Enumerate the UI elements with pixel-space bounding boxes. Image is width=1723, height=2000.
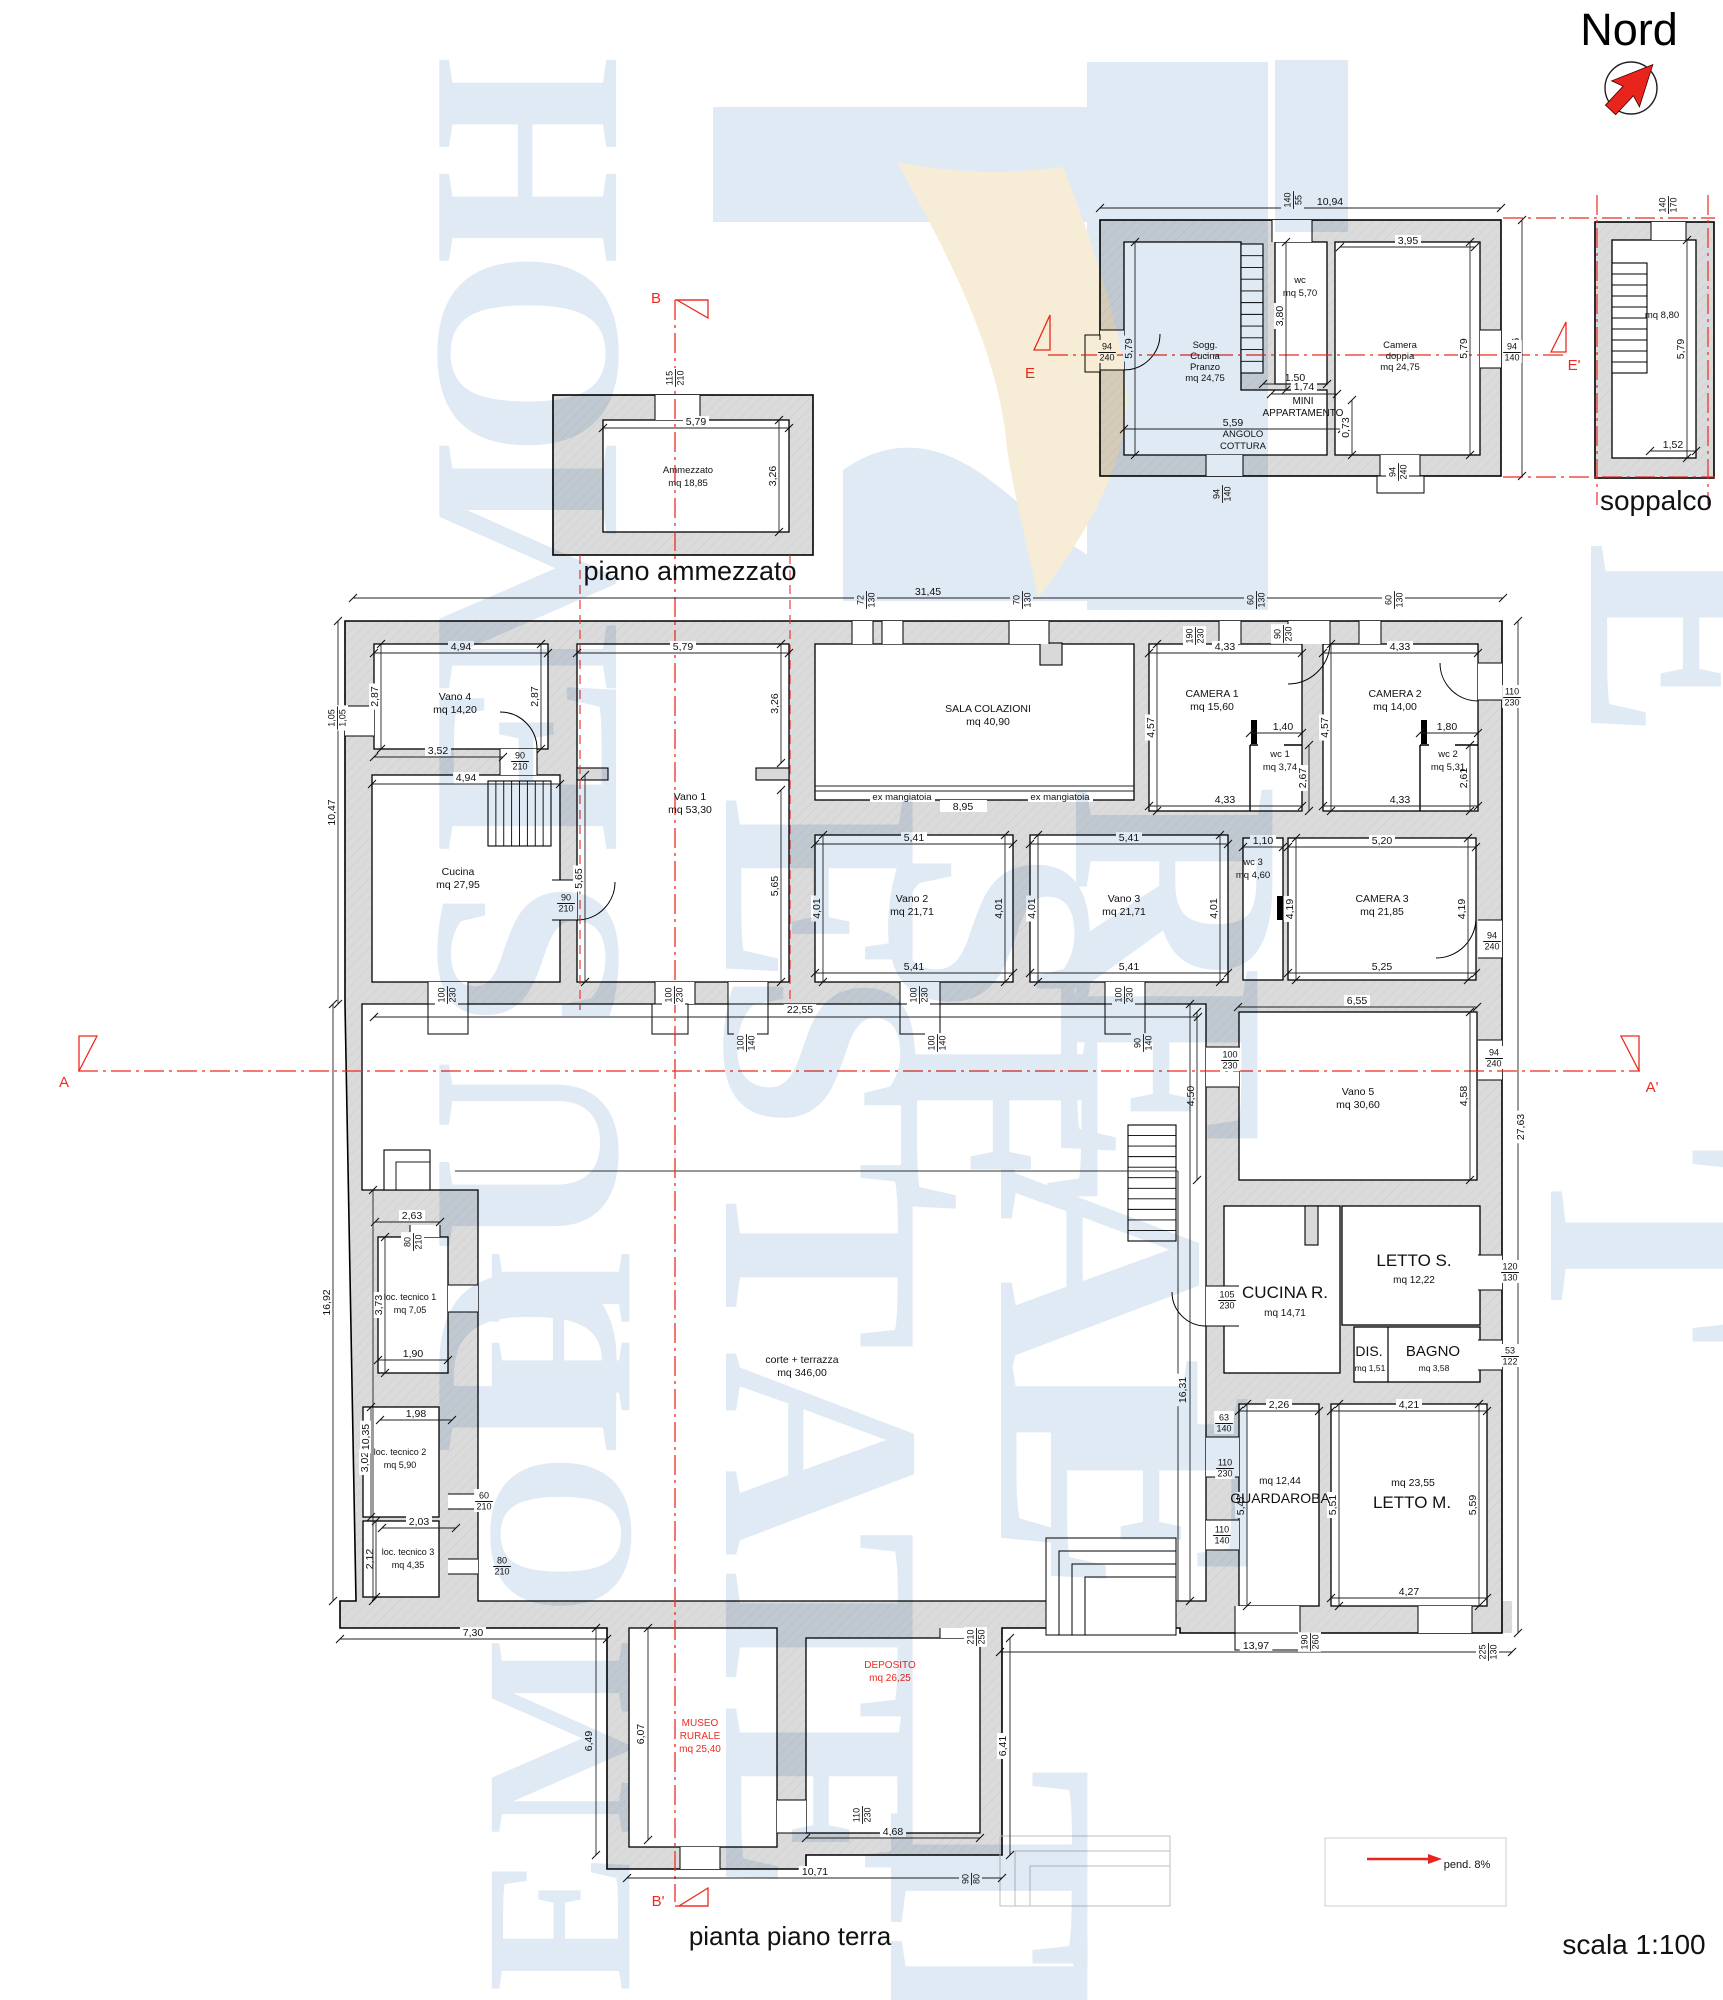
svg-text:mq 15,60: mq 15,60 bbox=[1190, 701, 1234, 713]
svg-text:10,47: 10,47 bbox=[326, 799, 338, 825]
svg-text:A': A' bbox=[1646, 1079, 1659, 1096]
svg-text:3,02: 3,02 bbox=[359, 1452, 371, 1473]
svg-text:4,27: 4,27 bbox=[1399, 1586, 1420, 1598]
svg-text:E: E bbox=[836, 1024, 1168, 1224]
svg-text:pend. 8%: pend. 8% bbox=[1444, 1859, 1491, 1871]
svg-text:110: 110 bbox=[1505, 687, 1519, 697]
svg-text:mq 14,71: mq 14,71 bbox=[1264, 1308, 1306, 1319]
svg-text:A: A bbox=[664, 1351, 980, 1557]
svg-text:13,97: 13,97 bbox=[1243, 1640, 1269, 1652]
svg-text:230: 230 bbox=[1284, 626, 1294, 641]
svg-text:mq 3,58: mq 3,58 bbox=[1419, 1363, 1450, 1373]
svg-text:T: T bbox=[664, 1531, 980, 1721]
svg-text:210: 210 bbox=[676, 370, 686, 385]
svg-text:130: 130 bbox=[1395, 592, 1405, 607]
svg-text:5,59: 5,59 bbox=[1467, 1495, 1479, 1516]
svg-text:O: O bbox=[376, 248, 675, 458]
svg-text:230: 230 bbox=[1196, 628, 1206, 643]
svg-text:E: E bbox=[443, 1852, 675, 1992]
svg-text:240: 240 bbox=[1486, 1059, 1501, 1069]
svg-text:5,79: 5,79 bbox=[673, 641, 694, 653]
svg-text:E: E bbox=[826, 1936, 1158, 2000]
svg-text:1,40: 1,40 bbox=[1273, 721, 1294, 733]
svg-text:240: 240 bbox=[1484, 942, 1499, 952]
svg-text:5,79: 5,79 bbox=[686, 416, 707, 428]
svg-text:1,80: 1,80 bbox=[1437, 721, 1458, 733]
svg-text:60: 60 bbox=[1384, 595, 1394, 605]
svg-text:94: 94 bbox=[1489, 1048, 1499, 1058]
svg-text:5,79: 5,79 bbox=[1458, 338, 1470, 359]
svg-text:E': E' bbox=[1568, 357, 1581, 374]
svg-text:mq 5,31: mq 5,31 bbox=[1431, 762, 1465, 773]
svg-text:T: T bbox=[1486, 1146, 1723, 1346]
svg-text:mq 3,74: mq 3,74 bbox=[1263, 762, 1297, 773]
svg-text:soppalco: soppalco bbox=[1600, 485, 1712, 516]
svg-text:wc 1: wc 1 bbox=[1269, 749, 1290, 760]
svg-text:6,55: 6,55 bbox=[1347, 995, 1368, 1007]
svg-text:O: O bbox=[443, 1453, 675, 1616]
svg-text:225: 225 bbox=[1478, 1644, 1488, 1659]
svg-text:mq 5,70: mq 5,70 bbox=[1283, 288, 1317, 299]
svg-text:1,52: 1,52 bbox=[1663, 439, 1684, 451]
svg-text:LETTO S.: LETTO S. bbox=[1376, 1251, 1451, 1270]
svg-text:MINI: MINI bbox=[1292, 396, 1313, 407]
svg-text:DIS.: DIS. bbox=[1355, 1343, 1382, 1359]
svg-text:Camera: Camera bbox=[1383, 340, 1418, 351]
svg-text:4,33: 4,33 bbox=[1390, 794, 1411, 806]
svg-text:mq 8,80: mq 8,80 bbox=[1645, 310, 1679, 321]
svg-text:4,19: 4,19 bbox=[1456, 899, 1468, 920]
svg-text:94: 94 bbox=[1388, 467, 1398, 477]
svg-text:3,26: 3,26 bbox=[767, 466, 779, 487]
svg-text:S: S bbox=[826, 848, 1158, 1015]
svg-text:mq 23,55: mq 23,55 bbox=[1391, 1477, 1435, 1489]
svg-text:3,80: 3,80 bbox=[1274, 306, 1286, 327]
svg-text:mq 5,90: mq 5,90 bbox=[384, 1460, 417, 1470]
svg-text:122: 122 bbox=[1502, 1357, 1517, 1367]
svg-text:CAMERA 2: CAMERA 2 bbox=[1368, 688, 1421, 700]
svg-text:90: 90 bbox=[1273, 629, 1283, 639]
svg-text:M: M bbox=[376, 438, 675, 693]
svg-text:10,35: 10,35 bbox=[360, 1424, 372, 1450]
svg-text:260: 260 bbox=[1311, 1634, 1321, 1649]
svg-text:APPARTAMENTO: APPARTAMENTO bbox=[1263, 408, 1344, 419]
svg-text:mq 1,51: mq 1,51 bbox=[1355, 1363, 1386, 1373]
svg-text:4,57: 4,57 bbox=[1319, 717, 1331, 738]
svg-text:mq 12,22: mq 12,22 bbox=[1393, 1275, 1435, 1286]
svg-text:wc: wc bbox=[1293, 275, 1306, 286]
svg-text:190: 190 bbox=[1185, 628, 1195, 643]
svg-text:wc 2: wc 2 bbox=[1437, 749, 1458, 760]
svg-text:4,58: 4,58 bbox=[1458, 1086, 1470, 1107]
svg-text:1,05: 1,05 bbox=[338, 709, 348, 727]
svg-text:240: 240 bbox=[1399, 464, 1409, 479]
svg-text:3,95: 3,95 bbox=[1398, 235, 1419, 247]
svg-text:4,21: 4,21 bbox=[1399, 1399, 1420, 1411]
svg-text:E: E bbox=[376, 673, 675, 853]
svg-text:0,73: 0,73 bbox=[1340, 417, 1352, 438]
svg-text:3,26: 3,26 bbox=[769, 693, 781, 714]
svg-text:170: 170 bbox=[1669, 197, 1679, 212]
svg-text:CAMERA 1: CAMERA 1 bbox=[1185, 688, 1238, 700]
svg-text:S: S bbox=[376, 880, 675, 1030]
svg-text:53: 53 bbox=[1505, 1346, 1515, 1356]
svg-text:190: 190 bbox=[1300, 1634, 1310, 1649]
svg-text:Cucina: Cucina bbox=[442, 866, 475, 878]
svg-text:27,63: 27,63 bbox=[1515, 1114, 1527, 1140]
svg-text:H: H bbox=[376, 55, 675, 265]
svg-text:LETTO M.: LETTO M. bbox=[1373, 1493, 1451, 1512]
svg-text:4,33: 4,33 bbox=[1390, 641, 1411, 653]
svg-text:1,05: 1,05 bbox=[327, 709, 337, 727]
svg-text:A: A bbox=[59, 1074, 69, 1091]
svg-text:16,92: 16,92 bbox=[321, 1289, 333, 1315]
svg-text:5,25: 5,25 bbox=[1372, 961, 1393, 973]
svg-text:140: 140 bbox=[1504, 353, 1519, 363]
svg-text:mq 40,90: mq 40,90 bbox=[966, 716, 1010, 728]
svg-text:140: 140 bbox=[1658, 197, 1668, 212]
svg-text:Nord: Nord bbox=[1580, 4, 1678, 55]
svg-text:4,33: 4,33 bbox=[1215, 641, 1236, 653]
svg-text:scala 1:100: scala 1:100 bbox=[1562, 1929, 1705, 1960]
svg-text:mq 24,75: mq 24,75 bbox=[1380, 362, 1420, 373]
svg-text:CAMERA 3: CAMERA 3 bbox=[1355, 893, 1408, 905]
svg-text:mq 30,60: mq 30,60 bbox=[1336, 1099, 1380, 1111]
svg-text:4,57: 4,57 bbox=[1145, 717, 1157, 738]
svg-text:94: 94 bbox=[1487, 931, 1497, 941]
svg-text:230: 230 bbox=[1504, 698, 1519, 708]
svg-text:5,20: 5,20 bbox=[1372, 835, 1393, 847]
svg-text:loc. tecnico 3: loc. tecnico 3 bbox=[382, 1547, 435, 1557]
svg-text:U: U bbox=[376, 1058, 675, 1253]
svg-text:E: E bbox=[986, 1394, 1318, 1594]
svg-text:94: 94 bbox=[1507, 342, 1517, 352]
svg-text:doppia: doppia bbox=[1386, 351, 1415, 362]
svg-text:5,79: 5,79 bbox=[1675, 339, 1687, 360]
svg-text:1,74: 1,74 bbox=[1294, 381, 1315, 393]
svg-text:mq 14,00: mq 14,00 bbox=[1373, 701, 1417, 713]
svg-text:H: H bbox=[443, 1251, 675, 1414]
svg-text:M: M bbox=[443, 1637, 675, 1835]
svg-text:Vano 5: Vano 5 bbox=[1342, 1086, 1375, 1098]
svg-text:mq 4,35: mq 4,35 bbox=[392, 1560, 425, 1570]
svg-text:2,03: 2,03 bbox=[409, 1516, 430, 1528]
svg-text:6,41: 6,41 bbox=[997, 1736, 1009, 1757]
svg-text:130: 130 bbox=[1489, 1644, 1499, 1659]
svg-text:mq 21,85: mq 21,85 bbox=[1360, 906, 1404, 918]
svg-text:2,12: 2,12 bbox=[364, 1549, 376, 1570]
svg-text:E: E bbox=[1526, 541, 1723, 741]
svg-text:SALA COLAZIONI: SALA COLAZIONI bbox=[945, 703, 1031, 715]
svg-text:BAGNO: BAGNO bbox=[1406, 1343, 1460, 1360]
